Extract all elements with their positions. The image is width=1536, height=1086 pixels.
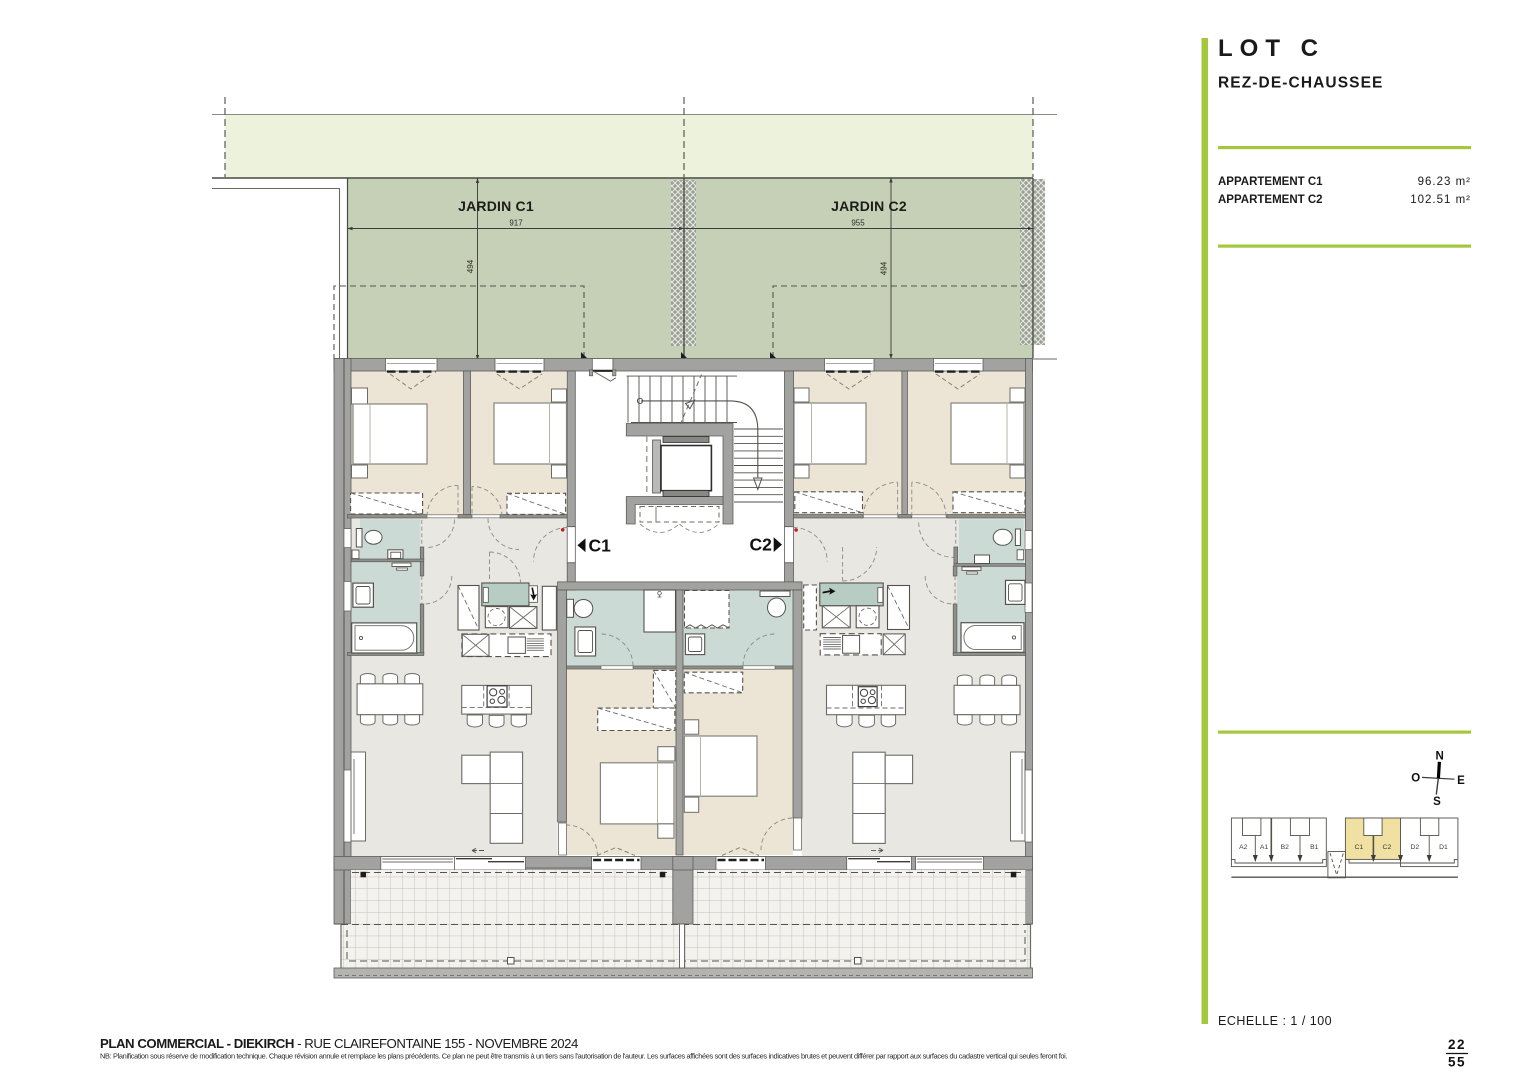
svg-text:494: 494 xyxy=(880,261,889,275)
svg-text:REZ-DE-CHAUSSEE: REZ-DE-CHAUSSEE xyxy=(1218,75,1383,92)
svg-text:D1: D1 xyxy=(1439,844,1448,851)
svg-text:N: N xyxy=(1435,751,1443,763)
svg-text:JARDIN C1: JARDIN C1 xyxy=(458,198,534,214)
svg-text:B1: B1 xyxy=(1310,844,1319,851)
svg-text:C1: C1 xyxy=(589,536,612,556)
svg-text:LOT C: LOT C xyxy=(1218,35,1325,62)
svg-text:A2: A2 xyxy=(1239,844,1248,851)
svg-text:JARDIN C2: JARDIN C2 xyxy=(831,198,907,214)
svg-text:955: 955 xyxy=(851,219,865,228)
svg-text:APPARTEMENT C1: APPARTEMENT C1 xyxy=(1218,176,1323,188)
svg-text:C2: C2 xyxy=(1383,844,1392,851)
svg-text:C1: C1 xyxy=(1355,844,1364,851)
svg-text:C2: C2 xyxy=(750,535,773,555)
svg-text:PLAN COMMERCIAL - DIEKIRCH - R: PLAN COMMERCIAL - DIEKIRCH - RUE CLAIREF… xyxy=(100,1036,578,1051)
svg-text:S: S xyxy=(1433,796,1441,808)
svg-text:917: 917 xyxy=(509,219,523,228)
svg-text:22: 22 xyxy=(1448,1037,1466,1052)
svg-text:APPARTEMENT C2: APPARTEMENT C2 xyxy=(1218,194,1323,206)
svg-text:494: 494 xyxy=(466,259,475,273)
svg-text:96.23 m²: 96.23 m² xyxy=(1418,176,1471,188)
svg-text:O: O xyxy=(1411,773,1420,785)
svg-text:A1: A1 xyxy=(1260,844,1269,851)
svg-text:102.51 m²: 102.51 m² xyxy=(1410,194,1471,206)
svg-text:55: 55 xyxy=(1448,1055,1466,1070)
svg-text:ECHELLE : 1 / 100: ECHELLE : 1 / 100 xyxy=(1218,1014,1332,1028)
svg-text:NB: Planification sous réserve: NB: Planification sous réserve de modifi… xyxy=(100,1052,1067,1061)
svg-text:E: E xyxy=(1457,775,1465,787)
svg-text:B2: B2 xyxy=(1281,844,1290,851)
svg-text:D2: D2 xyxy=(1410,844,1419,851)
